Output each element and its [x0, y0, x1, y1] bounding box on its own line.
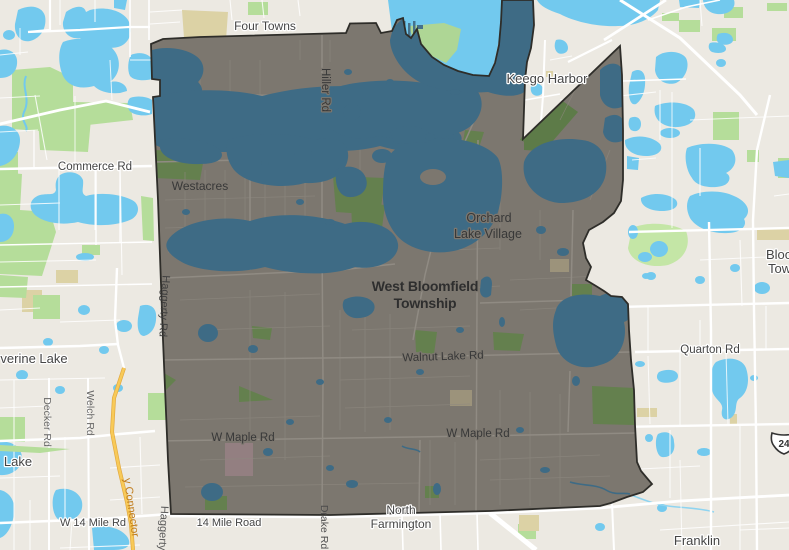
svg-text:Orchard: Orchard: [466, 211, 511, 225]
svg-text:Decker Rd: Decker Rd: [41, 397, 53, 447]
svg-text:Welch Rd: Welch Rd: [84, 390, 96, 435]
svg-text:W 14 Mile Rd: W 14 Mile Rd: [60, 517, 126, 529]
svg-text:Township: Township: [394, 295, 457, 311]
svg-text:Four Towns: Four Towns: [234, 19, 296, 33]
svg-text:Haggerty: Haggerty: [156, 506, 170, 550]
svg-text:Commerce Rd: Commerce Rd: [58, 161, 132, 173]
svg-text:Hiller Rd: Hiller Rd: [319, 68, 331, 112]
svg-text:Quarton Rd: Quarton Rd: [680, 344, 739, 356]
svg-text:14 Mile Road: 14 Mile Road: [197, 517, 262, 529]
svg-text:24: 24: [778, 439, 789, 450]
svg-text:Township: Township: [768, 261, 789, 276]
svg-text:Keego Harbor: Keego Harbor: [507, 71, 589, 86]
svg-text:Westacres: Westacres: [172, 179, 228, 193]
svg-text:Bloomfield: Bloomfield: [766, 247, 789, 262]
svg-text:Lake: Lake: [4, 454, 32, 469]
svg-text:Lake Village: Lake Village: [454, 227, 522, 241]
svg-text:W Maple Rd: W Maple Rd: [211, 432, 274, 444]
svg-text:Farmington: Farmington: [371, 517, 432, 531]
svg-text:North: North: [386, 503, 415, 517]
svg-text:verine Lake: verine Lake: [0, 351, 67, 366]
svg-text:West Bloomfield: West Bloomfield: [372, 278, 478, 294]
svg-text:W Maple Rd: W Maple Rd: [446, 428, 509, 440]
svg-text:Franklin: Franklin: [674, 533, 720, 548]
svg-text:Drake Rd: Drake Rd: [318, 505, 330, 550]
